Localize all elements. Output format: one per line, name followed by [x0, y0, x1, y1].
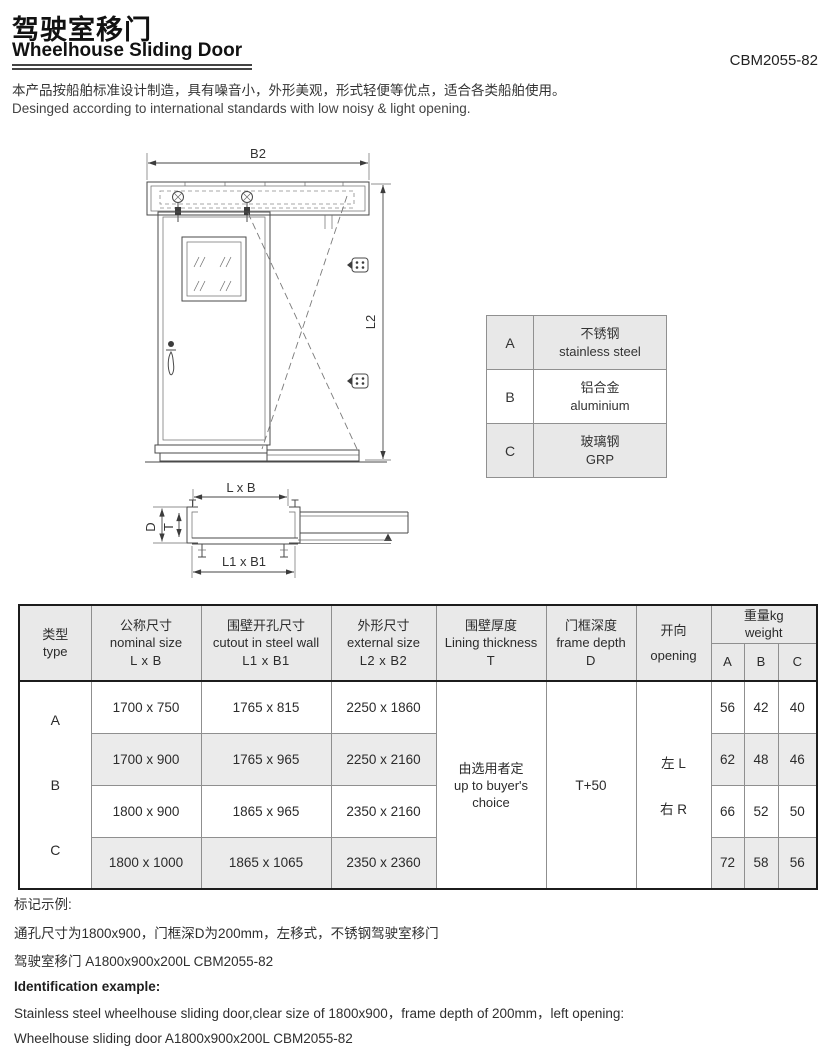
material-row-a: A 不锈钢 stainless steel: [487, 316, 667, 370]
nominal-size-cell: 1800 x 900: [91, 785, 201, 837]
col-header-opening: 开向 opening: [636, 605, 711, 681]
hanger-trolley-right: [242, 192, 253, 223]
col-header-external: 外形尺寸 external size L2 x B2: [331, 605, 436, 681]
technical-drawing: B2 L2: [125, 145, 435, 590]
page-title-en: Wheelhouse Sliding Door: [12, 40, 242, 62]
example-title-cn: 标记示例:: [14, 893, 814, 913]
front-view: B2 L2: [145, 146, 391, 462]
example-line-cn-1: 通孔尺寸为1800x900，门框深D为200mm，左移式，不锈钢驾驶室移门: [14, 922, 814, 942]
external-size-cell: 2350 x 2360: [331, 837, 436, 889]
model-number: CBM2055-82: [730, 52, 818, 69]
nominal-size-cell: 1700 x 900: [91, 733, 201, 785]
col-header-type: 类型 type: [19, 605, 91, 681]
door-window: [182, 237, 246, 301]
hanger-trolley-left: [173, 192, 184, 223]
cutout-size-cell: 1865 x 1065: [201, 837, 331, 889]
material-code: B: [487, 370, 534, 424]
description-en: Desinged according to international stan…: [12, 101, 471, 116]
col-header-weight: 重量kg weight: [711, 605, 817, 643]
weight-a-cell: 56: [711, 681, 744, 733]
col-header-depth: 门框深度 frame depth D: [546, 605, 636, 681]
nominal-size-cell: 1800 x 1000: [91, 837, 201, 889]
dim-label-l2: L2: [363, 315, 378, 329]
cutout-size-cell: 1865 x 965: [201, 785, 331, 837]
col-header-cutout: 围壁开孔尺寸 cutout in steel wall L1 x B1: [201, 605, 331, 681]
external-size-cell: 2250 x 2160: [331, 733, 436, 785]
col-header-weight-a: A: [711, 643, 744, 681]
col-header-nominal: 公称尺寸 nominal size L x B: [91, 605, 201, 681]
example-line-en-2: Wheelhouse sliding door A1800x900x200L C…: [14, 1031, 814, 1046]
example-title-en: Identification example:: [14, 979, 814, 994]
cutout-size-cell: 1765 x 965: [201, 733, 331, 785]
weight-b-cell: 52: [744, 785, 778, 837]
title-double-rule: [12, 64, 252, 70]
spec-table: 类型 type 公称尺寸 nominal size L x B 围壁开孔尺寸 c…: [18, 604, 818, 890]
material-name: 不锈钢 stainless steel: [534, 316, 667, 370]
col-header-weight-c: C: [778, 643, 817, 681]
dim-label-t: T: [161, 523, 176, 531]
dim-label-lxb: L x B: [226, 480, 255, 495]
guide-bracket-lower: [347, 374, 368, 388]
weight-b-cell: 58: [744, 837, 778, 889]
dim-label-l1xb1: L1 x B1: [222, 554, 266, 569]
section-view: L x B D T: [143, 480, 408, 578]
weight-c-cell: 56: [778, 837, 817, 889]
identification-example-block: 标记示例: 通孔尺寸为1800x900，门框深D为200mm，左移式，不锈钢驾驶…: [14, 893, 814, 1054]
opening-cell: 左 L 右 R: [636, 681, 711, 889]
material-row-c: C 玻璃钢 GRP: [487, 424, 667, 478]
weight-c-cell: 50: [778, 785, 817, 837]
material-code: C: [487, 424, 534, 478]
dim-label-d: D: [143, 522, 158, 531]
material-code: A: [487, 316, 534, 370]
example-line-en-1: Stainless steel wheelhouse sliding door,…: [14, 1002, 814, 1022]
weight-b-cell: 42: [744, 681, 778, 733]
col-header-weight-b: B: [744, 643, 778, 681]
weight-a-cell: 62: [711, 733, 744, 785]
weight-c-cell: 46: [778, 733, 817, 785]
frame-depth-cell: T+50: [546, 681, 636, 889]
guide-bracket-upper: [347, 258, 368, 272]
material-name: 玻璃钢 GRP: [534, 424, 667, 478]
example-line-cn-2: 驾驶室移门 A1800x900x200L CBM2055-82: [14, 950, 814, 970]
type-cell: A B C: [19, 681, 91, 889]
dim-label-b2: B2: [250, 146, 266, 161]
material-name: 铝合金 aluminium: [534, 370, 667, 424]
weight-c-cell: 40: [778, 681, 817, 733]
material-row-b: B 铝合金 aluminium: [487, 370, 667, 424]
spec-row-1: A B C 1700 x 750 1765 x 815 2250 x 1860 …: [19, 681, 817, 733]
weight-a-cell: 66: [711, 785, 744, 837]
weight-a-cell: 72: [711, 837, 744, 889]
weight-b-cell: 48: [744, 733, 778, 785]
door-handle: [166, 341, 176, 375]
material-table: A 不锈钢 stainless steel B 铝合金 aluminium C …: [486, 315, 667, 478]
external-size-cell: 2350 x 2160: [331, 785, 436, 837]
lining-thickness-cell: 由选用者定 up to buyer's choice: [436, 681, 546, 889]
external-size-cell: 2250 x 1860: [331, 681, 436, 733]
description-cn: 本产品按船舶标准设计制造，具有噪音小，外形美观，形式轻便等优点，适合各类船舶使用…: [12, 79, 566, 99]
cutout-size-cell: 1765 x 815: [201, 681, 331, 733]
col-header-lining: 围壁厚度 Lining thickness T: [436, 605, 546, 681]
nominal-size-cell: 1700 x 750: [91, 681, 201, 733]
